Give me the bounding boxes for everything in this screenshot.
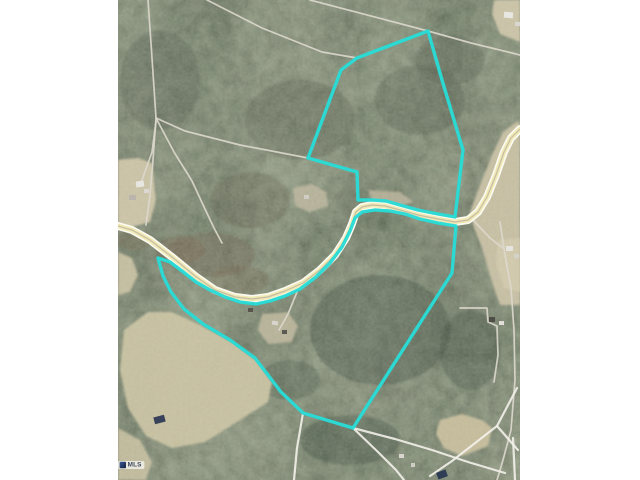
house	[504, 12, 513, 19]
house	[282, 330, 287, 334]
house	[144, 189, 149, 193]
mls-logo-icon	[120, 462, 126, 468]
house	[248, 308, 253, 312]
aerial-map-frame: MLS	[0, 0, 640, 480]
house	[506, 246, 513, 251]
house	[411, 463, 415, 467]
mls-watermark: MLS	[118, 461, 144, 469]
house	[304, 195, 309, 199]
house	[515, 22, 520, 26]
house	[136, 180, 145, 187]
house	[129, 195, 136, 200]
house	[514, 254, 519, 258]
house	[399, 454, 404, 458]
mls-watermark-text: MLS	[128, 462, 142, 468]
aerial-map	[0, 0, 640, 480]
house	[489, 317, 495, 322]
house	[499, 321, 504, 325]
photo-grain	[118, 0, 520, 480]
property-map-page: MLS	[0, 0, 640, 480]
